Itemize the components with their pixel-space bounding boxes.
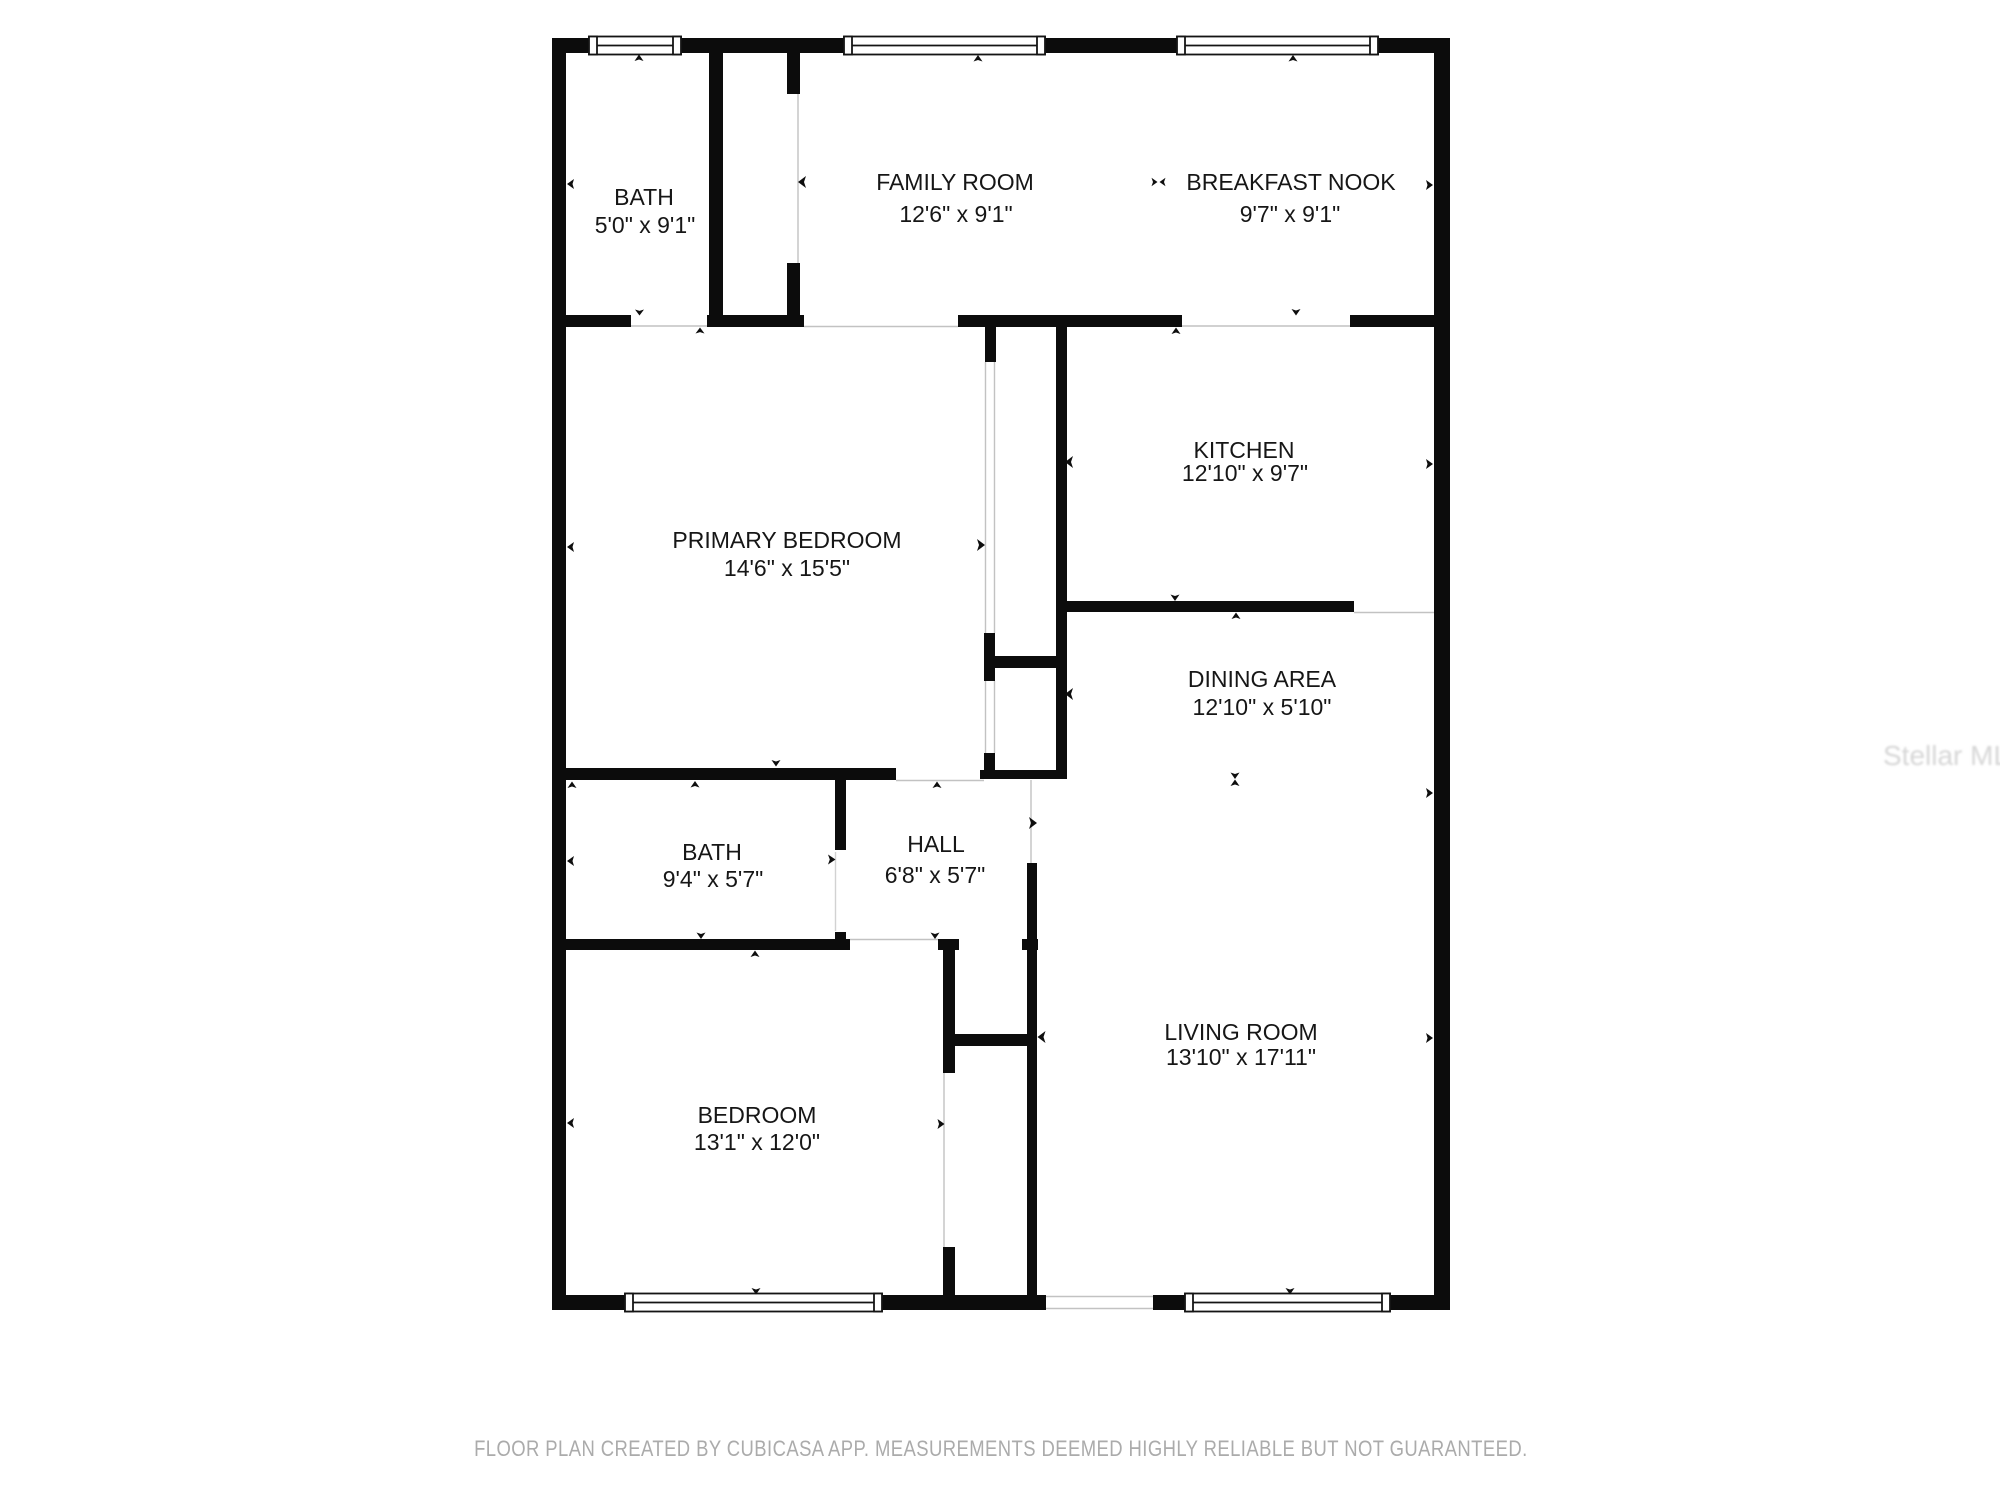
svg-text:DINING AREA: DINING AREA [1188,666,1337,692]
svg-text:6'8" x 5'7": 6'8" x 5'7" [885,862,986,888]
svg-text:Stellar MLS: Stellar MLS [1883,740,2000,771]
svg-text:BREAKFAST NOOK: BREAKFAST NOOK [1186,169,1396,195]
svg-text:9'4" x 5'7": 9'4" x 5'7" [663,866,764,892]
svg-text:12'6" x 9'1": 12'6" x 9'1" [899,201,1012,227]
svg-text:LIVING ROOM: LIVING ROOM [1164,1019,1317,1045]
svg-text:9'7" x 9'1": 9'7" x 9'1" [1240,201,1341,227]
svg-text:FLOOR PLAN CREATED BY CUBICASA: FLOOR PLAN CREATED BY CUBICASA APP. MEAS… [474,1438,1528,1462]
svg-text:BATH: BATH [614,184,674,210]
svg-text:5'0" x 9'1": 5'0" x 9'1" [595,212,696,238]
svg-text:13'10" x 17'11": 13'10" x 17'11" [1166,1044,1316,1070]
svg-text:HALL: HALL [907,831,965,857]
svg-text:12'10" x 5'10": 12'10" x 5'10" [1193,694,1332,720]
svg-text:FAMILY ROOM: FAMILY ROOM [876,169,1034,195]
svg-text:BEDROOM: BEDROOM [698,1102,817,1128]
svg-text:BATH: BATH [682,839,742,865]
svg-text:PRIMARY BEDROOM: PRIMARY BEDROOM [672,527,901,553]
svg-text:13'1" x 12'0": 13'1" x 12'0" [694,1129,820,1155]
svg-text:12'10" x 9'7": 12'10" x 9'7" [1182,460,1308,486]
svg-text:14'6" x 15'5": 14'6" x 15'5" [724,555,850,581]
